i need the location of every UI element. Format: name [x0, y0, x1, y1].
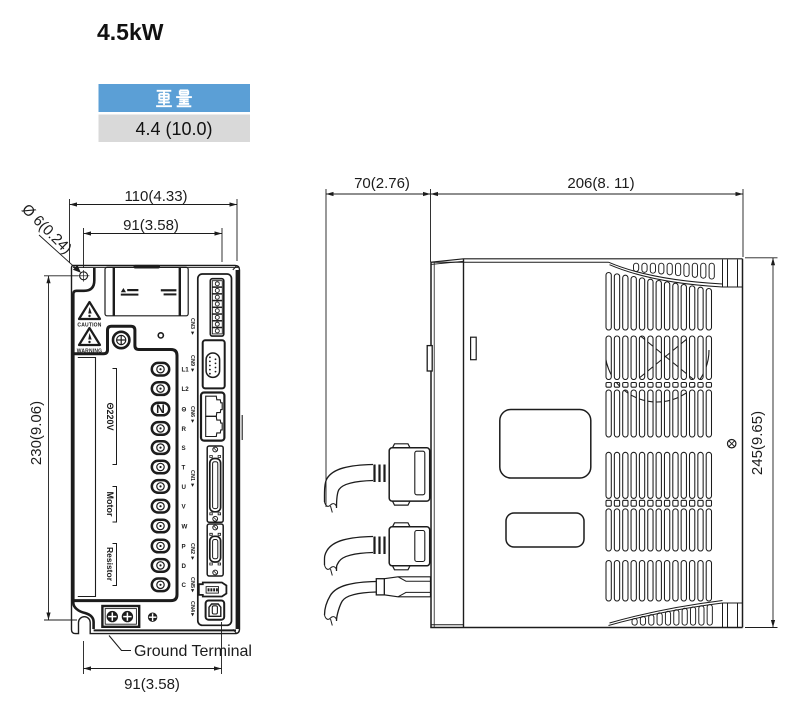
svg-text:CN2 ►: CN2 ►: [189, 543, 195, 561]
svg-text:CN1 ►: CN1 ►: [189, 470, 195, 488]
svg-text:CN3 ►: CN3 ►: [189, 318, 195, 336]
svg-text:Θ: Θ: [182, 406, 187, 413]
svg-text:91(3.58): 91(3.58): [124, 676, 180, 693]
svg-text:P: P: [182, 543, 186, 550]
svg-text:206(8. 11): 206(8. 11): [567, 175, 634, 192]
svg-text:Θ220V: Θ220V: [105, 402, 115, 430]
svg-text:T: T: [182, 464, 186, 471]
svg-text:4.4 (10.0): 4.4 (10.0): [135, 119, 212, 139]
svg-text:U: U: [182, 484, 187, 491]
svg-text:L1: L1: [182, 367, 190, 374]
svg-text:91(3.58): 91(3.58): [123, 217, 179, 234]
svg-text:C: C: [182, 582, 187, 589]
svg-text:N: N: [156, 402, 165, 416]
svg-text:Ground Terminal: Ground Terminal: [134, 643, 252, 660]
svg-text:S: S: [182, 445, 186, 452]
svg-text:W: W: [182, 523, 188, 530]
svg-text:CN9 ►: CN9 ►: [189, 355, 195, 373]
svg-text:CN6 ►: CN6 ►: [189, 406, 195, 424]
svg-text:R: R: [182, 426, 187, 433]
svg-text:Motor: Motor: [105, 492, 115, 517]
svg-text:L2: L2: [182, 386, 190, 393]
svg-text:4.5kW: 4.5kW: [97, 19, 164, 45]
svg-text:D: D: [182, 563, 187, 570]
svg-text:70(2.76): 70(2.76): [354, 175, 410, 192]
svg-text:CN5►: CN5►: [189, 577, 195, 593]
svg-text:CN4►: CN4►: [189, 601, 195, 617]
svg-text:Resistor: Resistor: [105, 547, 115, 582]
svg-text:245(9.65): 245(9.65): [749, 411, 766, 475]
svg-text:230(9.06): 230(9.06): [28, 401, 45, 465]
svg-text:110(4.33): 110(4.33): [124, 188, 187, 205]
